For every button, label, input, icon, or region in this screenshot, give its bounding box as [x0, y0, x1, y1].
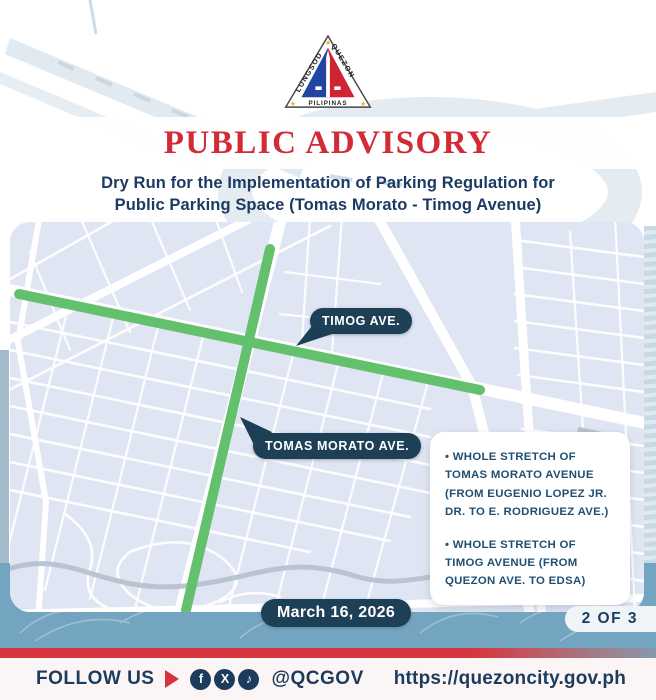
coverage-info-card: • WHOLE STRETCH OF TOMAS MORATO AVENUE (… — [430, 432, 630, 605]
follow-us-group: FOLLOW US f X ♪ @QCGOV — [36, 668, 364, 690]
tomas-morato-ave-label: TOMAS MORATO AVE. — [253, 433, 421, 459]
page-indicator: 2 OF 3 — [565, 606, 656, 632]
red-divider-stripe — [0, 648, 656, 658]
social-icons-row: f X ♪ — [190, 669, 259, 690]
advisory-subtitle: Dry Run for the Implementation of Parkin… — [0, 172, 656, 216]
coverage-item-timog: • WHOLE STRETCH OF TIMOG AVENUE (FROM QU… — [445, 536, 617, 591]
coverage-item-tomas-morato: • WHOLE STRETCH OF TOMAS MORATO AVENUE (… — [445, 448, 617, 522]
follow-us-label: FOLLOW US — [36, 668, 154, 690]
date-badge: March 16, 2026 — [261, 599, 411, 627]
star-right-icon: ★ — [360, 100, 366, 108]
timog-ave-label: TIMOG AVE. — [310, 308, 412, 334]
tiktok-icon[interactable]: ♪ — [238, 669, 259, 690]
facebook-icon[interactable]: f — [190, 669, 211, 690]
social-handle[interactable]: @QCGOV — [271, 668, 363, 690]
title-banner: PUBLIC ADVISORY — [0, 117, 656, 169]
quezon-city-seal: ★ ★ ★ LUNGSOD QUEZON PILIPINAS — [283, 34, 373, 110]
star-left-icon: ★ — [290, 100, 296, 108]
x-icon[interactable]: X — [214, 669, 235, 690]
right-photo-strip — [644, 226, 656, 563]
footer-bar: FOLLOW US f X ♪ @QCGOV https://quezoncit… — [0, 658, 656, 700]
page-title: PUBLIC ADVISORY — [164, 117, 492, 169]
subtitle-line-1: Dry Run for the Implementation of Parkin… — [0, 172, 656, 194]
subtitle-line-2: Public Parking Space (Tomas Morato - Tim… — [0, 194, 656, 216]
left-photo-strip — [0, 350, 9, 563]
logo-text-pilipinas: PILIPINAS — [309, 100, 348, 107]
play-arrow-icon — [165, 670, 179, 688]
map-panel: TIMOG AVE. TOMAS MORATO AVE. • WHOLE STR… — [10, 222, 644, 612]
website-url[interactable]: https://quezoncity.gov.ph — [394, 668, 626, 690]
